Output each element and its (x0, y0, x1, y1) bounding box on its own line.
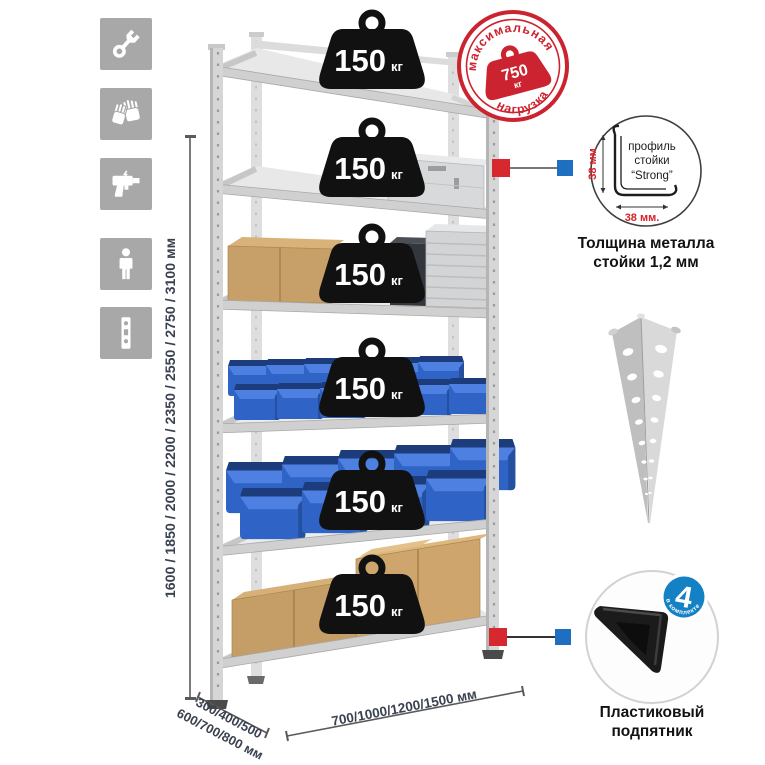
foot-caption-1: Пластиковый (600, 704, 705, 721)
profile-caption-1: Толщина металла (578, 235, 715, 252)
width-dimension-label: 700/1000/1200/1500 мм (330, 686, 478, 728)
svg-text:150: 150 (334, 257, 386, 292)
callout-bottom (489, 628, 571, 646)
profile-label-3: “Strong” (631, 170, 673, 182)
height-dimension-label: 1600 / 1850 / 2000 / 2200 / 2350 / 2550 … (163, 238, 179, 598)
shelving-rack: 150 кг 150 кг 150 кг 150 кг 150 кг 150 к… (206, 13, 515, 709)
svg-text:150: 150 (334, 484, 386, 519)
profile-dim-horizontal: 38 мм. (625, 212, 660, 224)
plastic-foot-detail: 4 в комплекте Пластиковый подпятник (586, 569, 718, 740)
svg-text:кг: кг (391, 500, 404, 515)
post-profile-icon (100, 307, 152, 359)
svg-text:кг: кг (391, 604, 404, 619)
profile-detail: 38 мм 38 мм. профиль стойки “Strong” Тол… (578, 116, 715, 271)
profile-label-1: профиль (628, 141, 676, 153)
height-dimension: 1600 / 1850 / 2000 / 2200 / 2350 / 2550 … (163, 135, 196, 700)
gloves-icon (100, 88, 152, 140)
red-marker (492, 159, 510, 177)
shelf-load-badge: 150 кг (319, 13, 425, 89)
svg-text:150: 150 (334, 588, 386, 623)
load-value: 150 (334, 43, 386, 78)
profile-dim-vertical: 38 мм (587, 148, 599, 180)
person-icon (100, 238, 152, 290)
svg-text:кг: кг (391, 273, 404, 288)
product-infographic: 150 кг 150 кг 150 кг 150 кг 150 кг 150 к… (0, 0, 765, 765)
svg-text:кг: кг (391, 167, 404, 182)
width-dimension: 700/1000/1200/1500 мм (286, 686, 524, 741)
post-foot (482, 650, 504, 659)
angle-post-render (607, 314, 682, 524)
svg-text:150: 150 (334, 151, 386, 186)
blue-marker (555, 629, 571, 645)
load-unit: кг (391, 59, 404, 74)
foot-caption-2: подпятник (611, 723, 692, 740)
drill-icon (100, 158, 152, 210)
profile-caption-2: стойки 1,2 мм (593, 254, 698, 271)
callout-top (492, 159, 573, 177)
profile-label-2: стойки (634, 155, 669, 167)
svg-text:кг: кг (391, 387, 404, 402)
shelf-load-badge: 150 кг (319, 121, 425, 197)
svg-text:150: 150 (334, 371, 386, 406)
post-foot (247, 676, 265, 684)
shelf-load-badge: 150 кг (319, 341, 425, 417)
wrench-icon (100, 18, 152, 70)
red-marker (489, 628, 507, 646)
blue-marker (557, 160, 573, 176)
